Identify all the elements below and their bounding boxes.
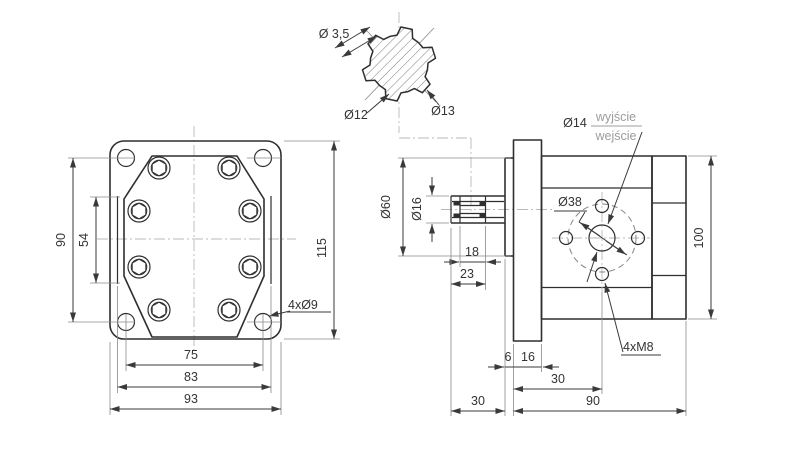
mounting-flange [514,140,542,341]
hex-bolt [239,200,261,222]
label-corner-holes: 4xØ9 [288,298,318,312]
hex-bolt [239,256,261,278]
dim-hole-spacing-h: 75 [184,348,198,362]
hex-bolt [148,299,170,321]
rear-cover [652,156,686,319]
flange-outline [110,141,281,339]
dim-body-height-side: 100 [692,228,706,249]
hex-bolt [218,299,240,321]
hex-bolt [128,256,150,278]
dim-spline-length: 18 [465,245,479,259]
hex-bolt [128,200,150,222]
hex-bolt [148,157,170,179]
technical-drawing-page: Ø 3,5 Ø12 Ø13 90 [0,0,800,450]
side-view: Ø60 Ø16 18 23 100 Ø38 Ø14 wyjście [379,110,717,416]
gear-pump-drawing: Ø 3,5 Ø12 Ø13 90 [0,0,800,450]
dim-port-diameter: Ø14 [563,116,587,130]
dim-body-width: 83 [184,370,198,384]
splined-shaft [451,196,505,223]
dim-spigot-thickness: 6 [505,350,512,364]
dim-body-length: 90 [586,394,600,408]
dim-flange-thickness: 16 [521,350,535,364]
dim-body-height: 54 [77,233,91,247]
pump-body [542,156,653,319]
dim-flange-width: 93 [184,392,198,406]
dim-flange-height: 115 [315,238,329,258]
dim-bolt-circle: Ø38 [558,195,582,209]
spline-section-view: Ø 3,5 Ø12 Ø13 [319,12,471,212]
dim-shaft-step-length: 23 [460,267,474,281]
dim-root-diameter: Ø12 [344,108,368,122]
dim-port-offset: 30 [551,372,565,386]
hex-bolt [218,157,240,179]
dim-spigot-diameter: Ø60 [379,195,393,219]
front-view: 90 54 115 4xØ9 75 83 93 [54,126,340,415]
dim-hole-spacing-v: 90 [54,233,68,247]
label-mount-thread: 4xM8 [623,340,654,354]
label-port-out: wyjście [595,110,636,124]
dim-shaft-diameter: Ø16 [410,197,424,221]
label-port-in: wejście [595,129,637,143]
dim-shaft-projection: 30 [471,394,485,408]
dim-tip-diameter: Ø13 [431,104,455,118]
dim-pin-diameter: Ø 3,5 [319,27,350,41]
